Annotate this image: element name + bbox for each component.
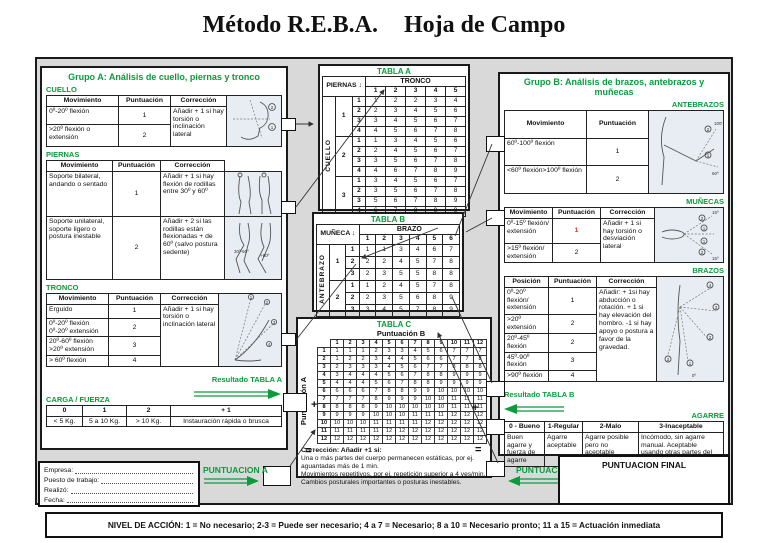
grid-cell: 4: [370, 372, 383, 380]
cuello-score-box[interactable]: [281, 118, 296, 131]
grid-cell: 12: [435, 420, 448, 428]
carga-value: Instauración rápida o brusca: [171, 416, 282, 427]
grid-cell: 7: [426, 127, 446, 137]
grid-cell: 2: [366, 107, 386, 117]
carga-value: > 10 Kg.: [127, 416, 171, 427]
grid-cell: 10: [461, 388, 474, 396]
grid-col-label: 5: [446, 87, 466, 97]
grid-cell: 1: [357, 348, 370, 356]
grid-cell: 5: [396, 364, 409, 372]
grid-cell: 10: [422, 396, 435, 404]
grid-cell: 12: [448, 436, 461, 444]
grid-cell: 12: [357, 436, 370, 444]
grid-cell: 12: [370, 436, 383, 444]
grid-row-number: 3: [352, 197, 365, 207]
grid-cell: 6: [406, 187, 426, 197]
grid-row-number: 4: [352, 167, 365, 177]
forearm-diagram: 2 1 100º60º: [649, 111, 724, 194]
grid-cell: 5: [366, 197, 386, 207]
resultado-tabla-b-arrow: [504, 404, 568, 415]
puesto-input-line[interactable]: [101, 476, 193, 484]
grid-cell: 2: [376, 257, 393, 269]
neck-diagram: 2 1: [227, 96, 282, 147]
grid-cell: 12: [396, 436, 409, 444]
grid-cell: 9: [474, 380, 487, 388]
cuello-row-mov: 0º-20º flexión: [47, 106, 119, 125]
munecas-section-label: MUÑECAS: [504, 197, 724, 206]
cuello-row-punt: 2: [119, 125, 171, 147]
page-title: Método R.E.B.A.Hoja de Campo: [0, 12, 768, 39]
grid-cell: 5: [393, 293, 410, 305]
grid-cell: 8: [383, 388, 396, 396]
grid-cell: 12: [409, 436, 422, 444]
grid-cell: 12: [474, 436, 487, 444]
plus-b-operator: +: [472, 403, 478, 414]
grid-cell: 12: [474, 428, 487, 436]
grid-cell: 7: [448, 348, 461, 356]
tronco-score-box[interactable]: [281, 333, 296, 346]
grid-cell: 5: [409, 281, 426, 293]
grid-cell: 2: [376, 281, 393, 293]
carga-header: 0: [47, 405, 83, 416]
grid-cell: 12: [396, 428, 409, 436]
resultado-tabla-b-label: Resultado TABLA B: [504, 390, 574, 399]
grid-row-number: 1: [352, 177, 365, 187]
grid-cell: 8: [443, 257, 460, 269]
grid-cell: 7: [474, 348, 487, 356]
tronco-row-mov: Erguido: [47, 304, 109, 318]
grid-cell: 5: [386, 157, 406, 167]
brazos-header-pos: Posición: [505, 277, 549, 288]
company-info-box: Empresa: Puesto de trabajo: Realizó: Fec…: [38, 461, 200, 507]
grid-cell: 3: [386, 137, 406, 147]
grid-cell: 5: [406, 117, 426, 127]
grid-cell: 12: [409, 428, 422, 436]
puntuacion-a-label: PUNTUACION A: [203, 465, 268, 475]
grid-row-label: 4: [318, 372, 331, 380]
grid-cell: 11: [396, 420, 409, 428]
tabla-b-title: TABLA B: [316, 215, 460, 224]
grid-cell: 7: [443, 245, 460, 257]
grid-cell: 10: [344, 420, 357, 428]
brazos-row-pos: 20º-45º flexión: [505, 333, 549, 352]
action-level-text: NIVEL DE ACCIÓN: 1 = No necesario; 2-3 =…: [108, 520, 660, 530]
grid-cell: 4: [393, 257, 410, 269]
grid-cell: 7: [422, 364, 435, 372]
munecas-row-mov: 0º-15º flexión/ extensión: [505, 218, 553, 244]
wrist-diagram: 2 1 1 2 15º15º: [655, 208, 724, 263]
grid-cell: 2: [386, 97, 406, 107]
grid-col-label: 6: [396, 340, 409, 348]
resultado-tabla-b-score-box[interactable]: [486, 381, 505, 397]
grid-cell: 8: [426, 197, 446, 207]
grid-cell: 12: [435, 428, 448, 436]
brazos-correction: Añadir: + 1si hay abducción o rotación. …: [597, 287, 657, 381]
grid-cell: 5: [393, 269, 410, 281]
grid-cell: 11: [409, 412, 422, 420]
action-level-bar: NIVEL DE ACCIÓN: 1 = No necesario; 2-3 =…: [45, 512, 723, 538]
grid-cell: 11: [370, 420, 383, 428]
tronco-header-mov: Movimiento: [47, 293, 109, 304]
grid-cell: 1: [359, 245, 376, 257]
equals-a-operator: =: [305, 446, 311, 457]
brazos-header-punt: Puntuación: [549, 277, 597, 288]
grid-row-number: 1: [352, 97, 365, 107]
munecas-header-mov: Movimiento: [505, 208, 553, 219]
grid-cell: 6: [383, 380, 396, 388]
grid-cell: 8: [344, 404, 357, 412]
grid-cell: 4: [409, 348, 422, 356]
grid-cell: 4: [446, 97, 466, 107]
carga-header: 1: [83, 405, 127, 416]
fecha-input-line[interactable]: [67, 496, 193, 504]
tabla-c-panel: TABLA C Puntuación B Puntuación A 123456…: [296, 317, 492, 478]
grid-cell: 9: [443, 293, 460, 305]
grid-cell: 8: [422, 372, 435, 380]
grid-cell: 6: [426, 117, 446, 127]
grid-cell: 1: [344, 348, 357, 356]
grid-cell: 7: [406, 167, 426, 177]
grid-cell: 3: [359, 305, 376, 317]
piernas-row-corr: Añadir + 2 si las rodillas están flexion…: [161, 216, 225, 279]
grid-cell: 5: [370, 380, 383, 388]
grid-cell: 9: [331, 412, 344, 420]
grid-row-label: 2: [318, 356, 331, 364]
realizo-input-line[interactable]: [71, 486, 193, 494]
carga-value: < 5 Kg.: [47, 416, 83, 427]
brazos-header-corr: Corrección: [597, 277, 657, 288]
grid-cell: 4: [366, 127, 386, 137]
grid-cell: 11: [357, 428, 370, 436]
cuello-correction: Añadir + 1 si hay torsión o inclinación …: [171, 106, 227, 146]
cuello-row-mov: >20º flexión o extensión: [47, 125, 119, 147]
grid-cell: 4: [406, 137, 426, 147]
grid-col-label: 1: [331, 340, 344, 348]
page-title-method: Método R.E.B.A.: [203, 12, 378, 38]
grid-cell: 7: [409, 305, 426, 317]
equals-b-operator: =: [475, 445, 481, 456]
grid-cell: 8: [474, 364, 487, 372]
grid-corner-blank: [318, 340, 331, 348]
grid-cell: 4: [409, 245, 426, 257]
grid-cell: 6: [409, 293, 426, 305]
carga-table: 0 1 2 + 1 < 5 Kg. 5 a 10 Kg. > 10 Kg. In…: [46, 405, 282, 428]
grid-cell: 5: [409, 257, 426, 269]
grid-cell: 4: [331, 380, 344, 388]
grid-cell: 5: [393, 305, 410, 317]
grid-cell: 8: [396, 388, 409, 396]
antebrazos-row-mov: 60º-100º flexión: [505, 138, 587, 166]
grid-cell: 9: [357, 412, 370, 420]
grid-corner-label: PIERNAS ↓: [323, 77, 366, 97]
grid-cell: 5: [426, 137, 446, 147]
grid-cell: 8: [426, 293, 443, 305]
muneca-score-box[interactable]: [486, 210, 505, 226]
puntuacion-final-label: PUNTUACION FINAL: [560, 460, 728, 470]
puntuacion-final-box[interactable]: PUNTUACION FINAL: [558, 455, 730, 505]
grid-cell: 9: [383, 396, 396, 404]
tabla-c-correction: Corrección: Añadir +1 si: Una o más part…: [301, 447, 487, 487]
grid-cell: 2: [359, 269, 376, 281]
grid-cell: 7: [396, 380, 409, 388]
antebrazo-score-box[interactable]: [486, 136, 505, 152]
munecas-header-punt: Puntuación: [553, 208, 601, 219]
grid-cell: 9: [461, 380, 474, 388]
grid-cell: 11: [409, 420, 422, 428]
grid-cell: 6: [435, 348, 448, 356]
grid-cell: 7: [426, 281, 443, 293]
grid-cell: 3: [376, 269, 393, 281]
grid-cell: 6: [409, 364, 422, 372]
agarre-header: 0 - Bueno: [505, 422, 545, 433]
grid-row-label: 3: [318, 364, 331, 372]
grid-cell: 3: [366, 117, 386, 127]
brazos-row-punt: 4: [549, 371, 597, 382]
grid-col-group-label: TRONCO: [366, 77, 466, 87]
grid-cell: 9: [474, 372, 487, 380]
trunk-diagram: 1 2 3 4: [219, 293, 282, 366]
grid-cell: 6: [422, 356, 435, 364]
cuello-header-corr: Corrección: [171, 96, 227, 107]
antebrazos-header-mov: Movimiento: [505, 111, 587, 139]
carga-header: + 1: [171, 405, 282, 416]
piernas-section-label: PIERNAS: [46, 150, 282, 159]
grid-row-number: 3: [346, 269, 359, 281]
svg-text:+60º: +60º: [260, 253, 270, 258]
group-b-panel: Grupo B: Análisis de brazos, antebrazos …: [498, 72, 730, 456]
puntuacion-b-axis-label: Puntuación B: [315, 329, 487, 338]
grid-cell: 9: [370, 404, 383, 412]
tabla-c-grid: 1234567891011121111233456777212234456677…: [317, 339, 487, 444]
grid-cell: 8: [370, 396, 383, 404]
agarre-header: 3-Inaceptable: [639, 422, 724, 433]
grid-cell: 6: [426, 245, 443, 257]
grid-col-label: 3: [357, 340, 370, 348]
tronco-row-mov: 20º-60º flexión >20º extensión: [47, 337, 109, 356]
grid-cell: 10: [435, 404, 448, 412]
grid-col-label: 1: [359, 235, 376, 245]
brazos-row-pos: 45º-90º flexión: [505, 352, 549, 371]
svg-text:1: 1: [271, 125, 274, 130]
brazos-row-pos: >90º flexión: [505, 371, 549, 382]
tronco-row-punt: 2: [109, 318, 161, 337]
grid-col-label: 2: [376, 235, 393, 245]
grid-cell: 10: [357, 420, 370, 428]
grid-cell: 11: [448, 404, 461, 412]
resultado-tabla-a-label: Resultado TABLA A: [212, 375, 282, 384]
grid-cell: 9: [446, 197, 466, 207]
grid-cell: 8: [426, 305, 443, 317]
grid-cell: 4: [386, 147, 406, 157]
grid-cell: 6: [446, 137, 466, 147]
tabla-a-title: TABLA A: [322, 67, 466, 76]
grid-cell: 12: [435, 436, 448, 444]
agarre-header: 2-Malo: [583, 422, 639, 433]
grid-cell: 10: [435, 388, 448, 396]
arm-diagram: 4 3 2 1 2 0º: [657, 277, 724, 382]
brazos-row-pos: 0º-20º flexión/ extensión: [505, 287, 549, 315]
munecas-header-corr: Corrección: [601, 208, 655, 219]
svg-text:2: 2: [271, 105, 274, 110]
grid-cell: 8: [357, 404, 370, 412]
grid-cell: 8: [422, 380, 435, 388]
antebrazos-row-punt: 2: [587, 166, 649, 194]
realizo-field-label: Realizó:: [44, 486, 69, 496]
grid-cell: 11: [383, 420, 396, 428]
grid-row-number: 2: [346, 293, 359, 305]
grid-cell: 12: [448, 420, 461, 428]
grid-cell: 10: [383, 412, 396, 420]
grid-cell: 7: [461, 348, 474, 356]
grid-row-label: 9: [318, 412, 331, 420]
grid-cell: 6: [357, 388, 370, 396]
grid-cell: 8: [443, 269, 460, 281]
grid-cell: 10: [474, 388, 487, 396]
grid-row-number: 2: [346, 257, 359, 269]
grid-cell: 12: [383, 436, 396, 444]
grid-cell: 7: [426, 187, 446, 197]
munecas-row-mov: >15º flexión/ extensión: [505, 244, 553, 263]
grid-col-label: 4: [426, 87, 446, 97]
piernas-row-mov: Soporte bilateral, andando o sentado: [47, 171, 113, 216]
tronco-row-punt: 4: [109, 356, 161, 367]
grid-col-label: 12: [474, 340, 487, 348]
grid-side-label: ANTEBRAZO: [317, 245, 330, 317]
grid-group-number: 2: [329, 281, 346, 317]
grid-cell: 9: [396, 396, 409, 404]
grid-cell: 12: [474, 420, 487, 428]
grid-cell: 1: [331, 348, 344, 356]
grid-corner-label: MUÑECA ↓: [317, 225, 360, 245]
tronco-section-label: TRONCO: [46, 283, 282, 292]
grid-cell: 10: [422, 404, 435, 412]
svg-text:15º: 15º: [712, 210, 719, 215]
grid-cell: 11: [331, 428, 344, 436]
grid-cell: 11: [448, 396, 461, 404]
puntuacion-b-score-box[interactable]: [486, 461, 505, 477]
grid-cell: 3: [393, 245, 410, 257]
grid-side-label: CUELLO: [323, 97, 336, 217]
grid-cell: 6: [344, 388, 357, 396]
tronco-row-punt: 1: [109, 304, 161, 318]
munecas-correction: Añadir + 1 si hay torsión o desviación l…: [601, 218, 655, 262]
grid-col-label: 2: [386, 87, 406, 97]
grid-cell: 3: [344, 364, 357, 372]
grid-row-number: 3: [346, 305, 359, 317]
grid-group-number: 1: [329, 245, 346, 281]
grid-cell: 3: [370, 364, 383, 372]
grid-cell: 12: [461, 436, 474, 444]
empresa-input-line[interactable]: [75, 466, 193, 474]
grid-cell: 7: [409, 372, 422, 380]
grid-cell: 7: [448, 356, 461, 364]
svg-text:60º: 60º: [712, 171, 719, 176]
grid-cell: 6: [446, 107, 466, 117]
grid-cell: 2: [359, 293, 376, 305]
grid-cell: 8: [426, 167, 446, 177]
svg-text:100º: 100º: [714, 121, 722, 126]
brazos-section-label: BRAZOS: [504, 266, 724, 275]
cuello-header-mov: Movimiento: [47, 96, 119, 107]
grid-cell: 9: [446, 167, 466, 177]
munecas-table: Movimiento Puntuación Corrección 2 1 1 2…: [504, 207, 724, 263]
piernas-score-box[interactable]: [281, 201, 296, 214]
resultado-tabla-a-score-box[interactable]: [283, 393, 307, 412]
cuello-section-label: CUELLO: [46, 85, 282, 94]
grid-cell: 5: [409, 269, 426, 281]
grid-cell: 12: [461, 420, 474, 428]
grid-cell: 4: [383, 356, 396, 364]
piernas-header-corr: Corrección: [161, 161, 225, 172]
tronco-row-punt: 3: [109, 337, 161, 356]
grid-cell: 10: [396, 404, 409, 412]
grid-row-number: 4: [352, 127, 365, 137]
grid-group-number: 1: [335, 97, 352, 137]
grid-cell: 8: [443, 281, 460, 293]
grid-cell: 6: [406, 127, 426, 137]
grid-cell: 1: [366, 97, 386, 107]
grid-cell: 7: [357, 396, 370, 404]
piernas-header-punt: Puntuación: [113, 161, 161, 172]
tronco-correction: Añadir + 1 si hay torsión o inclinación …: [161, 304, 219, 366]
munecas-row-punt: 2: [553, 244, 601, 263]
grid-cell: 3: [331, 372, 344, 380]
grid-cell: 7: [406, 197, 426, 207]
tronco-header-punt: Puntuación: [109, 293, 161, 304]
grid-cell: 12: [422, 420, 435, 428]
grid-group-number: 3: [335, 177, 352, 217]
grid-cell: 10: [409, 404, 422, 412]
grid-cell: 3: [396, 348, 409, 356]
grid-cell: 2: [370, 348, 383, 356]
grid-cell: 4: [386, 117, 406, 127]
grid-col-group-label: BRAZO: [359, 225, 459, 235]
grid-cell: 10: [448, 388, 461, 396]
grid-cell: 6: [406, 157, 426, 167]
agarre-value: Buen agarre y fuerza de agarre: [505, 432, 545, 466]
grid-cell: 4: [366, 167, 386, 177]
grid-cell: 1: [331, 356, 344, 364]
grid-row-label: 5: [318, 380, 331, 388]
agarre-score-box[interactable]: [486, 419, 505, 435]
tabla-c-correction-item: Cambios posturales importantes o postura…: [301, 479, 487, 487]
brazos-row-punt: 3: [549, 352, 597, 371]
grid-col-label: 2: [344, 340, 357, 348]
grid-cell: 12: [448, 412, 461, 420]
grid-cell: 10: [370, 412, 383, 420]
grid-cell: 4: [357, 380, 370, 388]
grid-cell: 2: [357, 356, 370, 364]
grid-cell: 8: [409, 380, 422, 388]
carga-value: 5 a 10 Kg.: [83, 416, 127, 427]
piernas-table: Movimiento Puntuación Corrección Soporte…: [46, 160, 282, 280]
puesto-field-label: Puesto de trabajo:: [44, 476, 99, 486]
grid-cell: 8: [448, 364, 461, 372]
grid-col-label: 3: [393, 235, 410, 245]
grid-cell: 7: [426, 157, 446, 167]
tronco-header-corr: Corrección: [161, 293, 219, 304]
grid-cell: 5: [406, 177, 426, 187]
grid-cell: 5: [406, 147, 426, 157]
grid-cell: 12: [461, 428, 474, 436]
piernas-row-corr: Añadir + 1 si hay flexión de rodillas en…: [161, 171, 225, 216]
grid-cell: 7: [370, 388, 383, 396]
grid-cell: 3: [386, 107, 406, 117]
grid-cell: 4: [376, 305, 393, 317]
grid-row-number: 1: [352, 137, 365, 147]
antebrazos-section-label: ANTEBRAZOS: [504, 100, 724, 109]
tronco-table: Movimiento Puntuación Corrección 1 2 3 4…: [46, 293, 282, 367]
